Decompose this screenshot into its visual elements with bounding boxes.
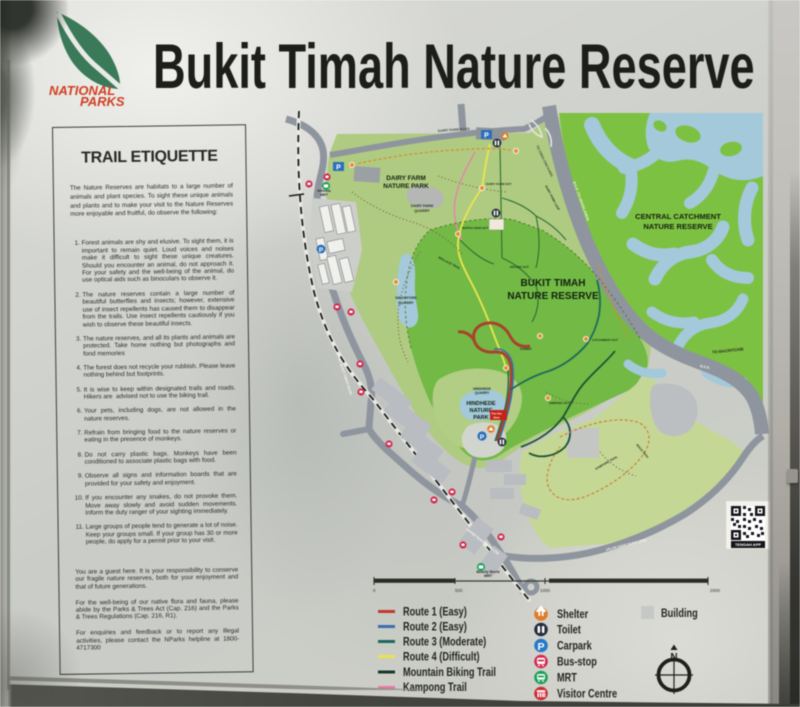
- svg-text:QUARRY: QUARRY: [475, 391, 490, 395]
- svg-text:DAIRY FARM HUT: DAIRY FARM HUT: [486, 182, 512, 186]
- svg-text:N: N: [670, 652, 677, 663]
- svg-text:P: P: [484, 133, 489, 140]
- svg-text:KRUING HUT: KRUING HUT: [510, 265, 529, 269]
- svg-text:HINDHEDE: HINDHEDE: [466, 401, 495, 407]
- svg-text:1000: 1000: [540, 588, 551, 593]
- svg-text:P: P: [336, 165, 341, 172]
- svg-text:500: 500: [455, 588, 463, 593]
- svg-text:TENGAH APP: TENGAH APP: [735, 542, 761, 547]
- svg-text:Carpark: Carpark: [557, 641, 592, 653]
- svg-text:Visitor Centre: Visitor Centre: [557, 689, 617, 701]
- svg-text:0: 0: [373, 588, 376, 593]
- svg-text:NATURE: NATURE: [470, 408, 493, 414]
- svg-text:P: P: [537, 641, 544, 653]
- svg-text:MRT: MRT: [484, 574, 493, 578]
- svg-text:NATURE RESERVE: NATURE RESERVE: [643, 222, 712, 231]
- svg-text:P: P: [319, 247, 324, 254]
- svg-text:DAIRY FARM: DAIRY FARM: [386, 175, 425, 182]
- svg-text:CATCHMENT HUT: CATCHMENT HUT: [592, 338, 618, 342]
- svg-text:Building: Building: [661, 608, 698, 620]
- svg-text:SINGAPORE: SINGAPORE: [395, 296, 417, 300]
- svg-text:PARK: PARK: [473, 415, 488, 421]
- svg-text:PARKS: PARKS: [80, 94, 125, 109]
- svg-text:SIMPANG HUT: SIMPANG HUT: [549, 401, 570, 405]
- svg-text:MRT: MRT: [320, 193, 329, 197]
- svg-text:Route 3 (Moderate): Route 3 (Moderate): [403, 637, 486, 649]
- svg-text:Route 4 (Difficult): Route 4 (Difficult): [403, 652, 480, 664]
- svg-text:Shelter: Shelter: [557, 609, 588, 621]
- svg-text:QUARRY: QUARRY: [414, 209, 430, 213]
- svg-text:Route 2 (Easy): Route 2 (Easy): [403, 622, 467, 634]
- svg-text:QUARRY: QUARRY: [398, 301, 414, 305]
- svg-text:BUKIT TIMAH: BUKIT TIMAH: [521, 278, 586, 289]
- svg-text:P: P: [480, 434, 485, 441]
- svg-text:NATURE RESERVE: NATURE RESERVE: [507, 291, 599, 302]
- svg-text:2000: 2000: [710, 588, 721, 593]
- svg-text:NATURE PARK: NATURE PARK: [383, 183, 429, 190]
- svg-text:SUMMIT: SUMMIT: [520, 347, 532, 351]
- svg-text:MRT: MRT: [557, 673, 577, 685]
- svg-text:Mountain Biking Trail: Mountain Biking Trail: [403, 667, 496, 679]
- svg-text:Toilet: Toilet: [557, 625, 581, 637]
- svg-text:Kampong Trail: Kampong Trail: [403, 682, 467, 694]
- svg-text:Bus-stop: Bus-stop: [557, 657, 597, 669]
- svg-text:DAIRY FARM: DAIRY FARM: [411, 204, 433, 208]
- svg-text:Here: Here: [493, 416, 500, 420]
- svg-text:CENTRAL CATCHMENT: CENTRAL CATCHMENT: [635, 212, 721, 221]
- svg-text:Route 1 (Easy): Route 1 (Easy): [403, 607, 467, 619]
- svg-text:NORTH VIEW HUT: NORTH VIEW HUT: [462, 226, 488, 230]
